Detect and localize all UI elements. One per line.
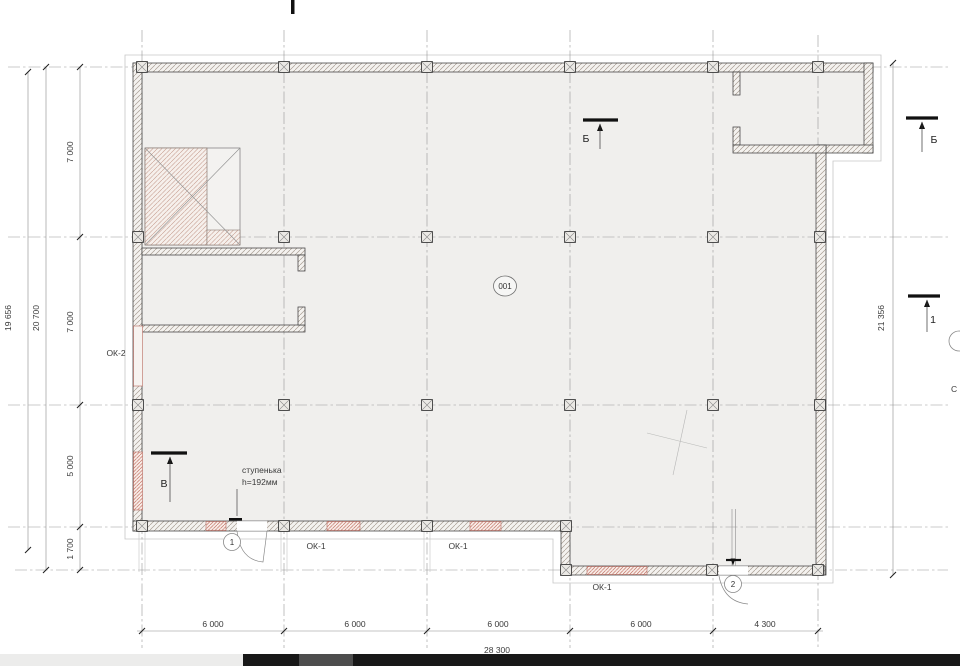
dimension-bottom-total: 28 300	[484, 645, 510, 655]
svg-text:В: В	[160, 478, 167, 490]
section-marker-1-right: 1	[908, 296, 940, 332]
svg-text:h=192мм: h=192мм	[242, 477, 278, 487]
dimension-bottom: 6 000 6 000 6 000 6 000 4 300 28 300	[137, 619, 823, 655]
svg-text:6 000: 6 000	[487, 619, 509, 629]
label-ok1-bottom: ОК-1	[592, 582, 611, 592]
floor-area	[133, 63, 873, 575]
svg-text:1: 1	[930, 314, 936, 326]
floor-plan-drawing: 1 2 001 Б Б 1 В	[0, 0, 960, 666]
svg-text:21 356: 21 356	[876, 305, 886, 331]
svg-text:4 300: 4 300	[754, 619, 776, 629]
label-ok1-mid: ОК-1	[448, 541, 467, 551]
svg-text:19 656: 19 656	[3, 305, 13, 331]
room-badge: 001	[494, 276, 517, 296]
stair-shaft-block	[145, 148, 240, 245]
svg-text:001: 001	[498, 282, 512, 291]
svg-text:5 000: 5 000	[65, 455, 75, 477]
svg-text:6 000: 6 000	[344, 619, 366, 629]
svg-text:1 700: 1 700	[65, 538, 75, 560]
dimension-left: 19 656 20 700 7 000 7 000 5 000 1 700	[3, 64, 83, 573]
svg-text:7 000: 7 000	[65, 141, 75, 163]
svg-text:7 000: 7 000	[65, 311, 75, 333]
taskbar[interactable]	[0, 654, 960, 666]
door-1-badge: 1	[230, 538, 235, 547]
section-marker-b-right: Б	[906, 118, 938, 152]
svg-text:20 700: 20 700	[31, 305, 41, 331]
svg-text:Б: Б	[583, 133, 590, 145]
dimension-right: 21 356	[876, 60, 896, 578]
lower-level-lines	[139, 531, 430, 572]
floor-plan-page: 1 2 001 Б Б 1 В	[0, 0, 960, 666]
label-ok2: ОК-2	[106, 348, 125, 358]
svg-text:6 000: 6 000	[202, 619, 224, 629]
edge-partial-label: С	[951, 384, 957, 394]
svg-text:ступенька: ступенька	[242, 465, 282, 475]
svg-text:6 000: 6 000	[630, 619, 652, 629]
door-2-badge: 2	[731, 580, 736, 589]
label-ok1-left: ОК-1	[306, 541, 325, 551]
section-line-tick-top	[291, 0, 295, 14]
edge-grid-bubble: С	[949, 331, 960, 394]
svg-text:Б: Б	[931, 134, 938, 146]
